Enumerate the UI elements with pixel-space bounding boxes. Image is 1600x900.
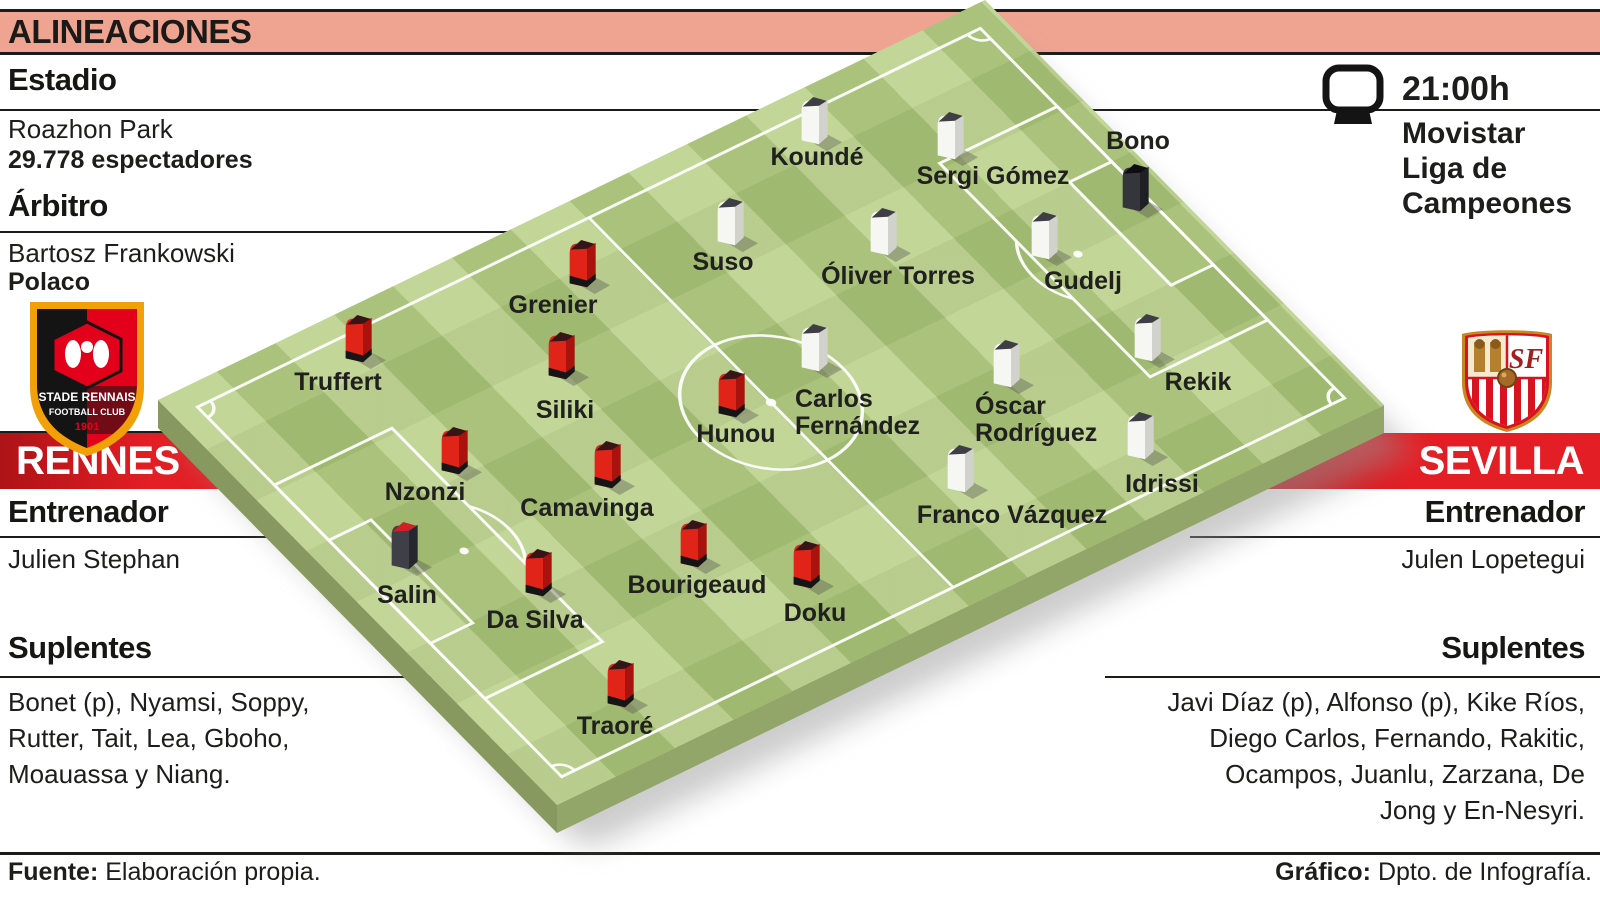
away-coach-divider-line	[1190, 536, 1600, 538]
referee-heading: Árbitro	[8, 188, 108, 224]
page-title: ALINEACIONES	[8, 12, 251, 52]
stadium-attendance: 29.778 espectadores	[8, 146, 253, 175]
away-team-name: SEVILLA	[1403, 439, 1600, 484]
tv-icon	[1322, 64, 1384, 128]
away-subs-list: Javi Díaz (p), Alfonso (p), Kike Ríos, D…	[1167, 684, 1585, 828]
stadium-heading: Estadio	[8, 62, 116, 98]
kickoff-time: 21:00h	[1402, 70, 1510, 109]
home-coach-heading: Entrenador	[8, 494, 168, 530]
away-crest: SF	[1458, 326, 1556, 434]
broadcast-channel: Movistar Liga de Campeones	[1402, 116, 1572, 221]
referee-nationality: Polaco	[8, 268, 90, 297]
footer-source-text: Elaboración propia.	[98, 858, 320, 886]
footer-source-label: Fuente:	[8, 858, 98, 886]
home-crest-title: STADE RENNAIS	[38, 390, 135, 404]
footer-credit-label: Gráfico:	[1275, 858, 1371, 886]
footer-divider-line	[0, 852, 1600, 855]
home-crest: STADE RENNAIS FOOTBALL CLUB 1901	[24, 298, 150, 458]
footer-credit-text: Dpto. de Infografía.	[1371, 858, 1592, 886]
home-subs-divider-line	[0, 676, 455, 678]
footer-source: Fuente: Elaboración propia.	[8, 858, 321, 887]
away-subs-heading: Suplentes	[1441, 630, 1585, 666]
lineups-infographic: ALINEACIONES Estadio Roazhon Park 29.778…	[0, 0, 1600, 900]
away-crest-monogram: SF	[1509, 344, 1544, 375]
home-subs-list: Bonet (p), Nyamsi, Soppy, Rutter, Tait, …	[8, 684, 310, 792]
stadium-name: Roazhon Park	[8, 114, 173, 145]
away-coach-heading: Entrenador	[1425, 494, 1585, 530]
home-crest-year: 1901	[75, 421, 99, 433]
away-subs-divider-line	[1105, 676, 1600, 678]
home-coach-name: Julien Stephan	[8, 544, 180, 575]
referee-divider-line	[0, 231, 560, 233]
title-band-underline	[0, 52, 1600, 55]
home-subs-heading: Suplentes	[8, 630, 152, 666]
home-crest-subtitle: FOOTBALL CLUB	[49, 407, 126, 417]
away-coach-name: Julen Lopetegui	[1401, 544, 1585, 575]
referee-name: Bartosz Frankowski	[8, 238, 235, 269]
footer-credit: Gráfico: Dpto. de Infografía.	[1275, 858, 1592, 887]
